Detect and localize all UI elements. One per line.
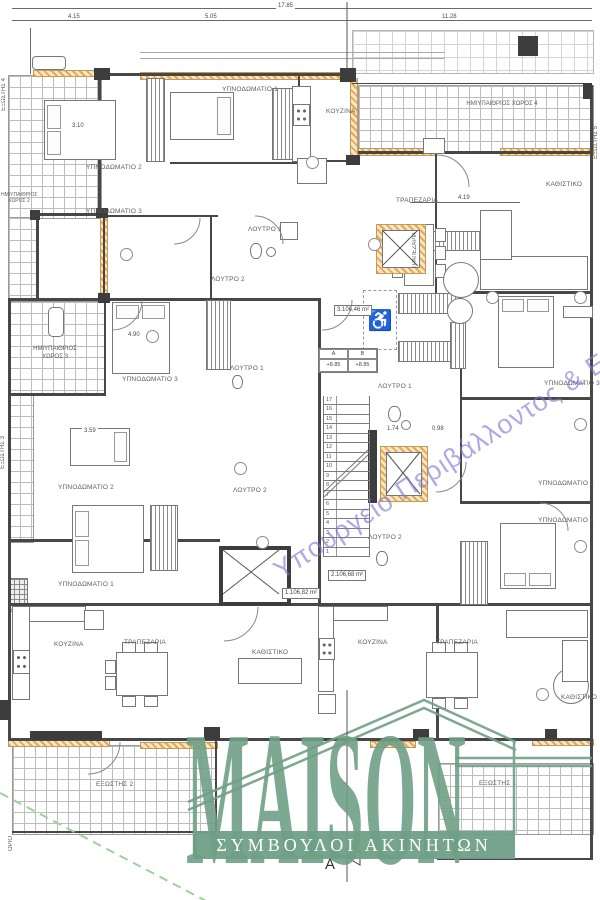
dining-table xyxy=(116,652,168,696)
column-block xyxy=(30,731,102,740)
level-table-value-b: +8.85 xyxy=(348,359,377,372)
stair-step-number: 5 xyxy=(326,510,329,518)
dimension-line xyxy=(12,8,592,9)
wall-segment xyxy=(460,501,592,504)
sink xyxy=(401,420,411,430)
pillow xyxy=(75,540,89,566)
dimension-label-total: 17.85 xyxy=(276,3,295,9)
room-label-dining-bl: ΤΡΑΠΕΖΑΡΙΑ xyxy=(124,639,166,646)
sofa xyxy=(480,210,512,260)
chair xyxy=(144,696,158,707)
column-block xyxy=(518,36,538,56)
insulation-hatch xyxy=(350,78,358,156)
room-label-bedroom1-tl: ΥΠΝΟΔΩΜΑΤΙΟ 1 xyxy=(222,86,278,93)
pillow xyxy=(527,299,549,312)
wall-segment xyxy=(104,300,106,395)
pillow xyxy=(75,511,89,537)
room-label-semi-open4: ΗΜΙΥΠΑΙΘΡΙΟΣ ΧΩΡΟΣ 4 xyxy=(452,101,552,109)
chair xyxy=(105,676,116,690)
toilet xyxy=(250,243,262,259)
dimension-label: 1.74 xyxy=(385,426,401,432)
door-arc xyxy=(437,155,469,187)
sink xyxy=(266,247,276,257)
stair-step: 13 xyxy=(324,434,369,443)
boundary-label: ΟΡΙΟ xyxy=(8,836,14,851)
wall-segment xyxy=(358,151,592,154)
wardrobe xyxy=(150,505,178,571)
room-label-bath2-c: ΛΟΥΤΡΟ 2 xyxy=(368,534,402,541)
stair-step-number: 7 xyxy=(326,491,329,499)
dimension-line xyxy=(12,20,592,21)
room-label-living-bl: ΚΑΘΙΣΤΙΚΟ xyxy=(252,649,288,656)
wall-segment xyxy=(8,603,592,606)
chair xyxy=(435,228,446,242)
stair-step-number: 13 xyxy=(326,434,332,442)
room-label-bedroom2-ml: ΥΠΝΟΔΩΜΑΤΙΟ 2 xyxy=(58,484,114,491)
chair xyxy=(435,246,446,260)
toilet xyxy=(376,551,388,566)
round-table xyxy=(443,262,479,298)
stair-step-number: 8 xyxy=(326,481,329,489)
door-arc xyxy=(224,607,258,641)
sofa xyxy=(238,658,302,684)
marker-circle xyxy=(574,418,587,431)
column-block xyxy=(340,68,356,82)
wardrobe xyxy=(450,322,466,369)
wall-segment xyxy=(170,162,300,164)
room-label-bath1-ml: ΛΟΥΤΡΟ 1 xyxy=(230,365,264,372)
toilet xyxy=(388,406,401,422)
dimension-line-vertical xyxy=(30,28,31,74)
stove xyxy=(319,638,335,660)
bed xyxy=(498,296,554,368)
toilet xyxy=(232,375,243,389)
wardrobe xyxy=(460,541,488,605)
marker-circle xyxy=(368,238,381,251)
level-table: A B +8.85 +8.85 xyxy=(318,348,378,373)
room-label-living-br: ΚΑΘΙΣΤΙΚΟ xyxy=(561,694,597,701)
room-label-balcony3: ΕΞΩΣΤΗΣ 3 xyxy=(0,436,6,469)
wall-segment xyxy=(98,73,350,76)
shelf xyxy=(563,306,593,318)
room-label-bath2-ml: ΛΟΥΤΡΟ 2 xyxy=(233,487,267,494)
pillow xyxy=(217,97,231,135)
tile-area-semi-open4 xyxy=(358,85,594,153)
dimension-label: 4.90 xyxy=(126,332,142,338)
dimension-label: 4.15 xyxy=(66,14,82,20)
door-arc xyxy=(174,218,200,244)
shower xyxy=(280,222,298,240)
wall-segment xyxy=(8,298,320,301)
pergola-line xyxy=(140,52,445,53)
room-label-semi-open2: ΗΜΙΥΠΑΙΘΡΙΟΣ ΧΩΡΟΣ 2 xyxy=(1,192,37,205)
section-marker-label: A xyxy=(325,856,335,873)
column-block xyxy=(583,83,592,99)
bed xyxy=(72,505,144,573)
pillow xyxy=(47,105,61,129)
pillow xyxy=(47,131,61,155)
pillow xyxy=(114,432,127,462)
room-label-bath1-c: ΛΟΥΤΡΟ 1 xyxy=(378,383,412,390)
round-table xyxy=(447,298,473,324)
stair-step-number: 11 xyxy=(326,453,332,461)
stair-step-number: 10 xyxy=(326,462,332,470)
marker-circle xyxy=(256,536,269,549)
bed xyxy=(112,302,170,374)
chair xyxy=(122,696,136,707)
marker-circle xyxy=(120,248,133,261)
tile-area-left-strip xyxy=(8,393,34,543)
pillow xyxy=(504,573,526,586)
sofa xyxy=(480,256,588,290)
stove xyxy=(293,104,310,126)
wardrobe xyxy=(206,300,231,370)
pillow xyxy=(502,299,524,312)
wall-segment xyxy=(210,215,212,300)
wall-segment xyxy=(460,291,592,294)
stair-step-number: 15 xyxy=(326,415,332,423)
stair-step-number: 17 xyxy=(326,396,332,404)
dimension-label: 3.10 xyxy=(70,123,86,129)
stair-step-number: 9 xyxy=(326,472,329,480)
marker-circle xyxy=(146,330,159,343)
dimension-line xyxy=(410,202,520,203)
stair-step: 8 xyxy=(324,481,369,490)
wall-segment xyxy=(12,831,215,833)
insulation-hatch xyxy=(8,740,110,747)
room-label-semi-open3: ΗΜΙΥΠΑΙΘΡΙΟΣ ΧΩΡΟΣ 3 xyxy=(22,346,88,361)
column-block xyxy=(30,210,40,220)
fridge xyxy=(84,610,104,630)
level-table-header-b: B xyxy=(348,349,377,359)
room-label-bath1-tl: ΛΟΥΤΡΟ 1 xyxy=(248,226,282,233)
room-label-bath2-tl: ΛΟΥΤΡΟ 2 xyxy=(211,276,245,283)
room-label-bedroom1-ml: ΥΠΝΟΔΩΜΑΤΙΟ 1 xyxy=(58,581,114,588)
stair-step-number: 16 xyxy=(326,405,332,413)
room-label-balcony1: ΕΞΩΣΤΗΣ 1 xyxy=(479,780,516,787)
dining-table xyxy=(426,652,478,698)
room-label-balcony5: ΕΞΩΣΤΗΣ 5 xyxy=(593,126,599,159)
bed xyxy=(44,100,116,160)
marker-circle xyxy=(574,291,587,304)
room-label-dining-tr-table: ΤΡΑΠΕΖΑΡΙΑ xyxy=(412,232,418,269)
tile-area-semi-open2 xyxy=(8,217,38,303)
dimension-label: 11.28 xyxy=(440,14,459,20)
column-block xyxy=(346,155,360,165)
wall-segment xyxy=(590,85,593,860)
bench xyxy=(423,138,445,154)
level-table-value-a: +8.85 xyxy=(319,359,348,372)
stair-step: 10 xyxy=(324,462,369,471)
bed xyxy=(70,428,130,466)
room-label-bedroom1-r: ΥΠΝΟΔΩΜΑΤΙΟ 1 xyxy=(538,517,594,524)
stair-step-number: 6 xyxy=(326,500,329,508)
stair-step: 9 xyxy=(324,472,369,481)
dimension-label: 3.59 xyxy=(82,428,98,434)
column-block xyxy=(0,700,10,720)
pillow xyxy=(142,305,165,319)
room-label-balcony2: ΕΞΩΣΤΗΣ 2 xyxy=(96,781,133,788)
planter xyxy=(32,56,66,70)
room-label-living-tr: ΚΑΘΙΣΤΙΚΟ xyxy=(546,181,582,188)
planter xyxy=(48,307,64,337)
marker-circle xyxy=(234,462,247,475)
wall-segment xyxy=(8,393,106,396)
stair-step: 14 xyxy=(324,424,369,433)
marker-circle xyxy=(306,156,319,169)
area-label-apt1: 1.106,82 m² xyxy=(282,588,320,599)
room-label-kitchen-bl: ΚΟΥΖΙΝΑ xyxy=(54,641,84,648)
room-label-kitchen-br: ΚΟΥΖΙΝΑ xyxy=(358,639,388,646)
stair-step-number: 14 xyxy=(326,424,332,432)
insulation-hatch xyxy=(33,70,102,77)
wheelchair-area: ♿ xyxy=(363,290,397,350)
wall-segment xyxy=(103,215,218,217)
chair xyxy=(105,660,116,674)
stair-step: 17 xyxy=(324,396,369,405)
stair-step: 16 xyxy=(324,405,369,414)
dimension-label: 4.19 xyxy=(456,195,472,201)
sofa xyxy=(506,610,588,638)
column-block xyxy=(545,729,557,739)
pillow xyxy=(529,573,551,586)
stove xyxy=(13,650,30,674)
logo-tagline: ΣΥΜΒΟΥΛΟΙ ΑΚΙΝΗΤΩΝ xyxy=(216,835,491,856)
wall-segment xyxy=(36,215,39,300)
room-label-bedroom3-tl: ΥΠΝΟΔΩΜΑΤΙΟ 3 xyxy=(86,208,142,215)
logo-tagline-banner: ΣΥΜΒΟΥΛΟΙ ΑΚΙΝΗΤΩΝ xyxy=(193,831,515,859)
stair-step-number: 12 xyxy=(326,443,332,451)
stair-step: 11 xyxy=(324,453,369,462)
room-label-balcony4: ΕΞΩΣΤΗΣ 4 xyxy=(1,78,7,111)
bed xyxy=(170,92,234,140)
bed xyxy=(500,523,556,589)
marker-circle xyxy=(486,291,499,304)
marker-circle xyxy=(536,688,549,701)
wall-segment xyxy=(103,215,105,300)
sofa xyxy=(562,640,588,682)
room-label-kitchen-tl: ΚΟΥΖΙΝΑ xyxy=(326,108,356,115)
pergola-line xyxy=(140,58,445,59)
dimension-label: 0.98 xyxy=(430,426,446,432)
dimension-label: 5.05 xyxy=(203,14,219,20)
column-block xyxy=(94,68,110,80)
room-label-bedroom2-tl: ΥΠΝΟΔΩΜΑΤΙΟ 2 xyxy=(86,164,142,171)
room-label-bedroom3-ml: ΥΠΝΟΔΩΜΑΤΙΟ 3 xyxy=(122,376,178,383)
stair-step: 15 xyxy=(324,415,369,424)
area-label-apt3: 3.106,46 m² xyxy=(334,305,372,316)
wall-segment xyxy=(8,298,11,740)
room-label-bedroom2-r: ΥΠΝΟΔΩΜΑΤΙΟ 2 xyxy=(538,480,594,487)
floor-plan-canvas: 17.85 4.15 5.05 11.28 xyxy=(0,0,600,900)
wardrobe xyxy=(146,78,165,162)
stair-step: 12 xyxy=(324,443,369,452)
column-block xyxy=(98,293,110,303)
marker-circle xyxy=(574,540,587,553)
area-label-apt2: 2.106,68 m² xyxy=(328,570,366,581)
wall-segment xyxy=(352,83,592,84)
level-table-header-a: A xyxy=(319,349,348,359)
pillow xyxy=(116,305,139,319)
room-label-dining-br: ΤΡΑΠΕΖΑΡΙΑ xyxy=(436,639,478,646)
